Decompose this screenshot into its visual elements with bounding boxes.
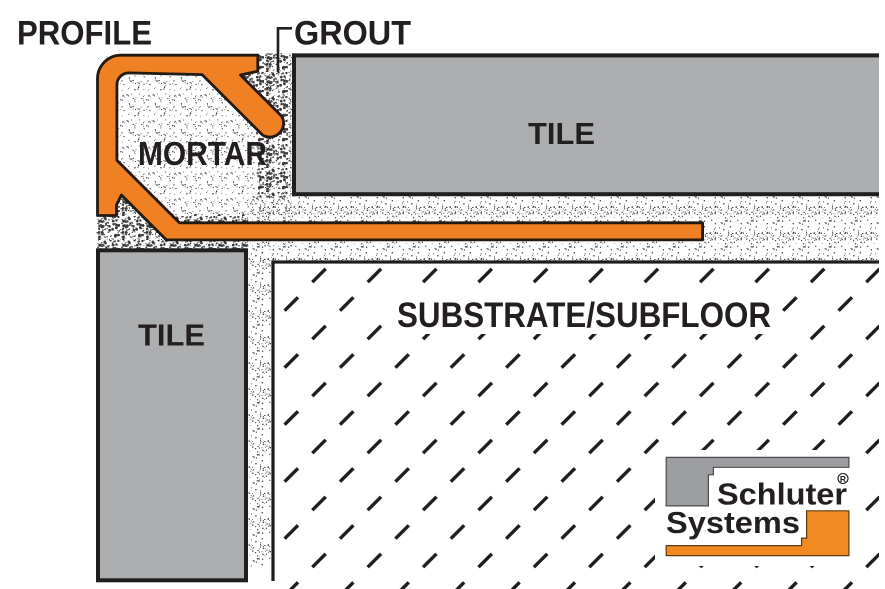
- svg-text:R: R: [840, 474, 846, 484]
- svg-text:Systems: Systems: [666, 505, 800, 540]
- svg-text:TILE: TILE: [138, 318, 205, 353]
- svg-text:GROUT: GROUT: [294, 15, 411, 53]
- svg-text:SUBSTRATE/SUBFLOOR: SUBSTRATE/SUBFLOOR: [397, 296, 771, 335]
- svg-text:MORTAR: MORTAR: [138, 135, 267, 172]
- svg-text:PROFILE: PROFILE: [17, 15, 152, 53]
- svg-text:TILE: TILE: [528, 116, 595, 151]
